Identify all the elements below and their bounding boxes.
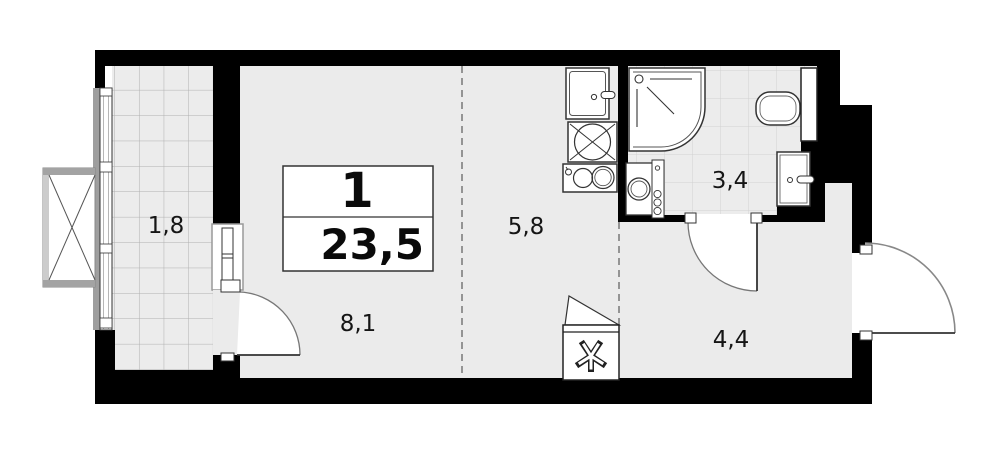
balcony-door-jamb (221, 280, 240, 292)
wall-balcony-bottom (95, 370, 213, 404)
glazing-tick (100, 162, 112, 172)
wall-bath-right-upper (817, 66, 840, 105)
bathroom-door-jamb (751, 213, 762, 223)
washbasin (777, 152, 814, 206)
hob-2-burner (563, 164, 617, 192)
entrance-door-swing (865, 243, 955, 333)
wall-right-step (817, 105, 872, 141)
balcony-glazing (93, 88, 112, 330)
glazing-tick (100, 318, 112, 328)
wall-balcony-living-top (213, 50, 240, 224)
balcony-door-jamb (221, 353, 234, 361)
kitchen-units (563, 68, 617, 192)
faucet-icon (601, 92, 615, 99)
toilet (756, 92, 800, 125)
bathroom-door-opening (690, 214, 757, 223)
wall-left-top-stub (95, 50, 105, 88)
balcony-area-label: 1,8 (148, 213, 185, 239)
entrance-door-jamb (860, 245, 872, 254)
duct-shaft (801, 68, 817, 141)
balcony-window-glass (222, 228, 233, 286)
window-x-box (43, 168, 95, 287)
washing-machine-bath (626, 163, 653, 215)
floor-plan: 1 23,5 1,8 8,1 5,8 3,4 4,4 (0, 0, 1003, 450)
living-area-label: 8,1 (340, 311, 377, 337)
wall-top (97, 50, 840, 66)
bathroom-area-label: 3,4 (712, 168, 749, 194)
balcony-door-opening (213, 290, 240, 355)
wall-bottom (213, 378, 872, 404)
glazing-tick (100, 88, 112, 96)
hallway-niche-floor (825, 183, 852, 223)
kitchen-area-label: 5,8 (508, 214, 545, 240)
hallway-area-label: 4,4 (713, 327, 750, 353)
floor-plan-canvas: 1 23,5 1,8 8,1 5,8 3,4 4,4 (0, 0, 1003, 450)
wall-bath-corner (777, 206, 825, 222)
total-area: 23,5 (320, 220, 424, 269)
pipe-riser (652, 160, 664, 218)
kitchen-sink (566, 68, 615, 119)
title-box: 1 23,5 (283, 163, 433, 271)
bathroom-door-jamb (685, 213, 696, 223)
faucet-icon (797, 176, 814, 183)
glazing-strip (100, 88, 112, 330)
glazing-tick (100, 244, 112, 253)
rooms-count: 1 (340, 163, 373, 219)
washing-machine-kitchen (568, 122, 617, 162)
entrance-door (852, 243, 955, 340)
entrance-door-jamb (860, 331, 872, 340)
